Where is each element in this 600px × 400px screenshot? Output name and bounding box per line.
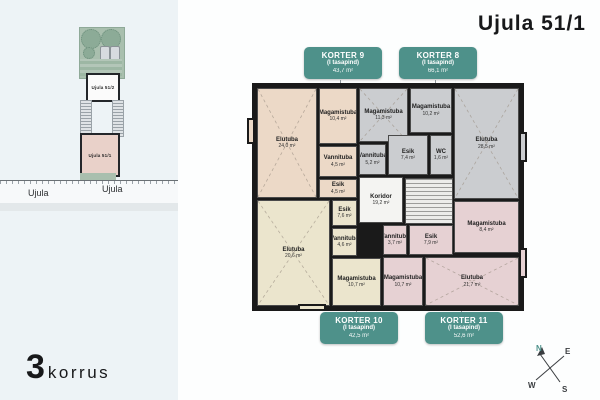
korter-11-magamistuba: Magamistuba10,7 m² [383, 257, 423, 306]
apartment-area: 43,7 m² [306, 68, 380, 74]
curb-ticks [0, 181, 178, 184]
compass-icon: N E W S [526, 342, 574, 394]
room-name: Vannituba [332, 236, 357, 243]
room-area: 4,5 m² [331, 189, 345, 195]
room-name: WC [436, 149, 446, 156]
compass-e: E [565, 347, 571, 356]
compass-n: N [536, 344, 542, 353]
common-koridor: Koridor19,2 m² [359, 177, 403, 223]
korter-11-vannituba: Vannituba3,7 m² [383, 225, 407, 255]
sidewalk [0, 203, 178, 211]
street-label: Ujula [28, 188, 49, 198]
tree-icon [83, 47, 95, 59]
room-name: Magamistuba [319, 110, 357, 117]
building-lower-label: Ujula 51/1 [88, 153, 111, 158]
room-name: Vannituba [383, 234, 407, 241]
room-area: 19,2 m² [373, 200, 390, 206]
room-area: 10,2 m² [423, 111, 440, 117]
room-name: Magamistuba [384, 275, 422, 282]
room-name: Esik [332, 182, 344, 189]
korter-8-badge: KORTER 8 (I tasapind) 66,1 m² [399, 47, 477, 79]
room-name: Esik [425, 234, 437, 241]
room-area: 3,7 m² [388, 240, 402, 246]
floor-label: 3 korrus [26, 350, 110, 384]
korter-9-magamistuba: Magamistuba10,4 m² [319, 88, 357, 144]
room-name: Vannituba [324, 155, 353, 162]
room-area: 24,0 m² [279, 143, 296, 149]
korter-11-elutuba: Elutuba21,7 m² [425, 257, 519, 306]
balcony [298, 304, 326, 311]
korter-11-esik: Esik7,9 m² [409, 225, 453, 255]
korter-11-badge: KORTER 11 (I tasapind) 52,6 m² [425, 312, 503, 344]
korter-9-elutuba: Elutuba24,0 m² [257, 88, 317, 198]
page: Ujula 51/2 Ujula 51/1 Ujula Ujula Ujula … [0, 0, 600, 400]
apartment-subtitle: (I tasapind) [427, 325, 501, 331]
room-area: 11,3 m² [375, 115, 392, 121]
building-ujula-51-2: Ujula 51/2 [86, 73, 120, 102]
outdoor-stairs [112, 100, 124, 137]
apartment-subtitle: (I tasapind) [401, 60, 475, 66]
page-title: Ujula 51/1 [478, 12, 586, 36]
room-name: Elutuba [461, 275, 483, 282]
room-name: Magamistuba [467, 221, 505, 228]
room-area: 10,7 m² [395, 282, 412, 288]
korter-11-magamistuba: Magamistuba8,4 m² [454, 201, 519, 253]
room-area: 8,4 m² [479, 227, 493, 233]
building-upper-label: Ujula 51/2 [91, 85, 114, 90]
balcony [519, 132, 527, 162]
apartment-name: KORTER 8 [401, 51, 475, 60]
room-name: Elutuba [476, 137, 498, 144]
room-name: Koridor [370, 194, 392, 201]
room-area: 7,9 m² [424, 240, 438, 246]
room-name: Magamistuba [337, 276, 375, 283]
apartment-name: KORTER 9 [306, 51, 380, 60]
staircase [405, 178, 453, 224]
apartment-area: 42,5 m² [322, 333, 396, 339]
apartment-name: KORTER 10 [322, 316, 396, 325]
korter-9-vannituba: Vannituba4,5 m² [319, 146, 357, 177]
room-area: 4,6 m² [337, 242, 351, 248]
room-name: Elutuba [283, 247, 305, 254]
apartment-name: KORTER 11 [427, 316, 501, 325]
room-name: Magamistuba [364, 109, 402, 116]
korter-10-badge: KORTER 10 (I tasapind) 42,5 m² [320, 312, 398, 344]
room-area: 4,5 m² [331, 162, 345, 168]
korter-8-elutuba: Elutuba28,5 m² [454, 88, 519, 199]
room-area: 21,7 m² [464, 282, 481, 288]
floor-word: korrus [48, 363, 110, 383]
korter-10-magamistuba: Magamistuba10,7 m² [332, 258, 381, 306]
floor-plan: Elutuba24,0 m²Magamistuba10,4 m²Vannitub… [252, 83, 524, 311]
apartment-area: 52,6 m² [427, 333, 501, 339]
korter-10-esik: Esik7,6 m² [332, 200, 357, 226]
room-name: Magamistuba [412, 104, 450, 111]
room-area: 1,6 m² [434, 155, 448, 161]
compass-w: W [528, 381, 536, 390]
street-label: Ujula [102, 184, 123, 194]
room-area: 7,4 m² [401, 155, 415, 161]
site-plan-panel: Ujula 51/2 Ujula 51/1 Ujula Ujula [0, 0, 178, 400]
building-ujula-51-1: Ujula 51/1 [80, 133, 120, 177]
korter-8-vannituba: Vannituba5,2 m² [359, 144, 386, 175]
room-name: Esik [338, 207, 350, 214]
korter-9-badge: KORTER 9 (I tasapind) 43,7 m² [304, 47, 382, 79]
room-name: Elutuba [276, 137, 298, 144]
room-area: 28,5 m² [478, 144, 495, 150]
floor-number: 3 [26, 350, 45, 384]
room-area: 7,6 m² [337, 213, 351, 219]
room-area: 10,4 m² [330, 116, 347, 122]
room-name: Esik [402, 149, 414, 156]
balcony [519, 248, 527, 278]
balcony [247, 118, 255, 144]
korter-8-magamistuba: Magamistuba11,3 m² [359, 88, 408, 142]
room-area: 20,6 m² [285, 253, 302, 259]
room-area: 10,7 m² [348, 282, 365, 288]
korter-8-wc: WC1,6 m² [430, 135, 452, 175]
apartment-subtitle: (I tasapind) [306, 60, 380, 66]
lawn-strip [80, 173, 116, 180]
apartment-area: 66,1 m² [401, 68, 475, 74]
korter-10-vannituba: Vannituba4,6 m² [332, 228, 357, 256]
compass-s: S [562, 385, 568, 394]
tree-icon [81, 29, 101, 49]
korter-9-esik: Esik4,5 m² [319, 179, 357, 198]
apartment-subtitle: (I tasapind) [322, 325, 396, 331]
outdoor-stairs [80, 100, 92, 137]
korter-8-magamistuba: Magamistuba10,2 m² [410, 88, 452, 133]
korter-8-esik: Esik7,4 m² [388, 135, 428, 175]
korter-10-elutuba: Elutuba20,6 m² [257, 200, 330, 306]
room-name: Vannituba [359, 153, 386, 160]
room-area: 5,2 m² [365, 160, 379, 166]
